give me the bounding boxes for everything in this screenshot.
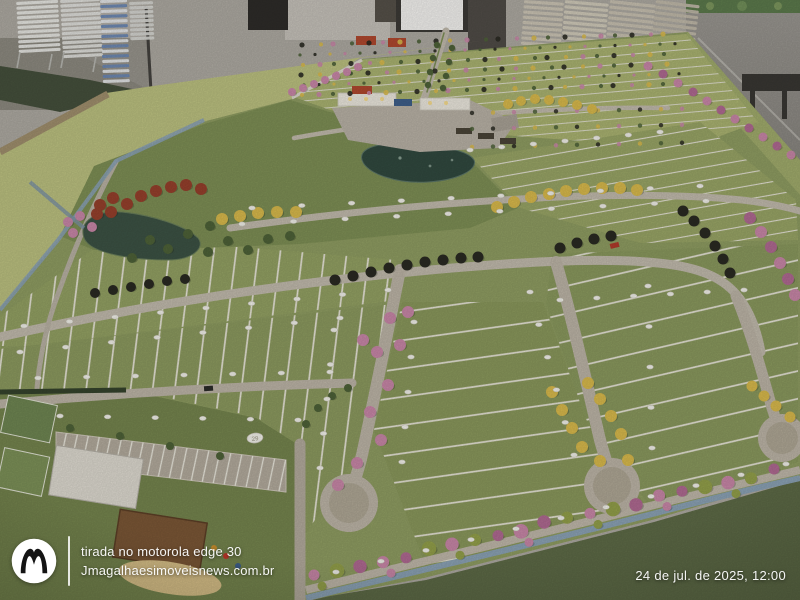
photo-of-scale-model: 29 tirada no motorola edge 30 Jmagalhaes… [0,0,800,600]
motorola-logo-svg [11,538,57,584]
watermark-text: tirada no motorola edge 30 Jmagalhaesimo… [81,542,274,581]
watermark-site-line: Jmagalhaesimoveisnews.com.br [81,561,274,581]
photo-timestamp: 24 de jul. de 2025, 12:00 [635,568,786,583]
watermark: tirada no motorola edge 30 Jmagalhaesimo… [11,536,274,586]
watermark-device-line: tirada no motorola edge 30 [81,542,274,562]
motorola-logo-icon [11,538,57,584]
photo-grain [0,0,800,600]
watermark-divider [68,536,70,586]
scene-svg: 29 [0,0,800,600]
